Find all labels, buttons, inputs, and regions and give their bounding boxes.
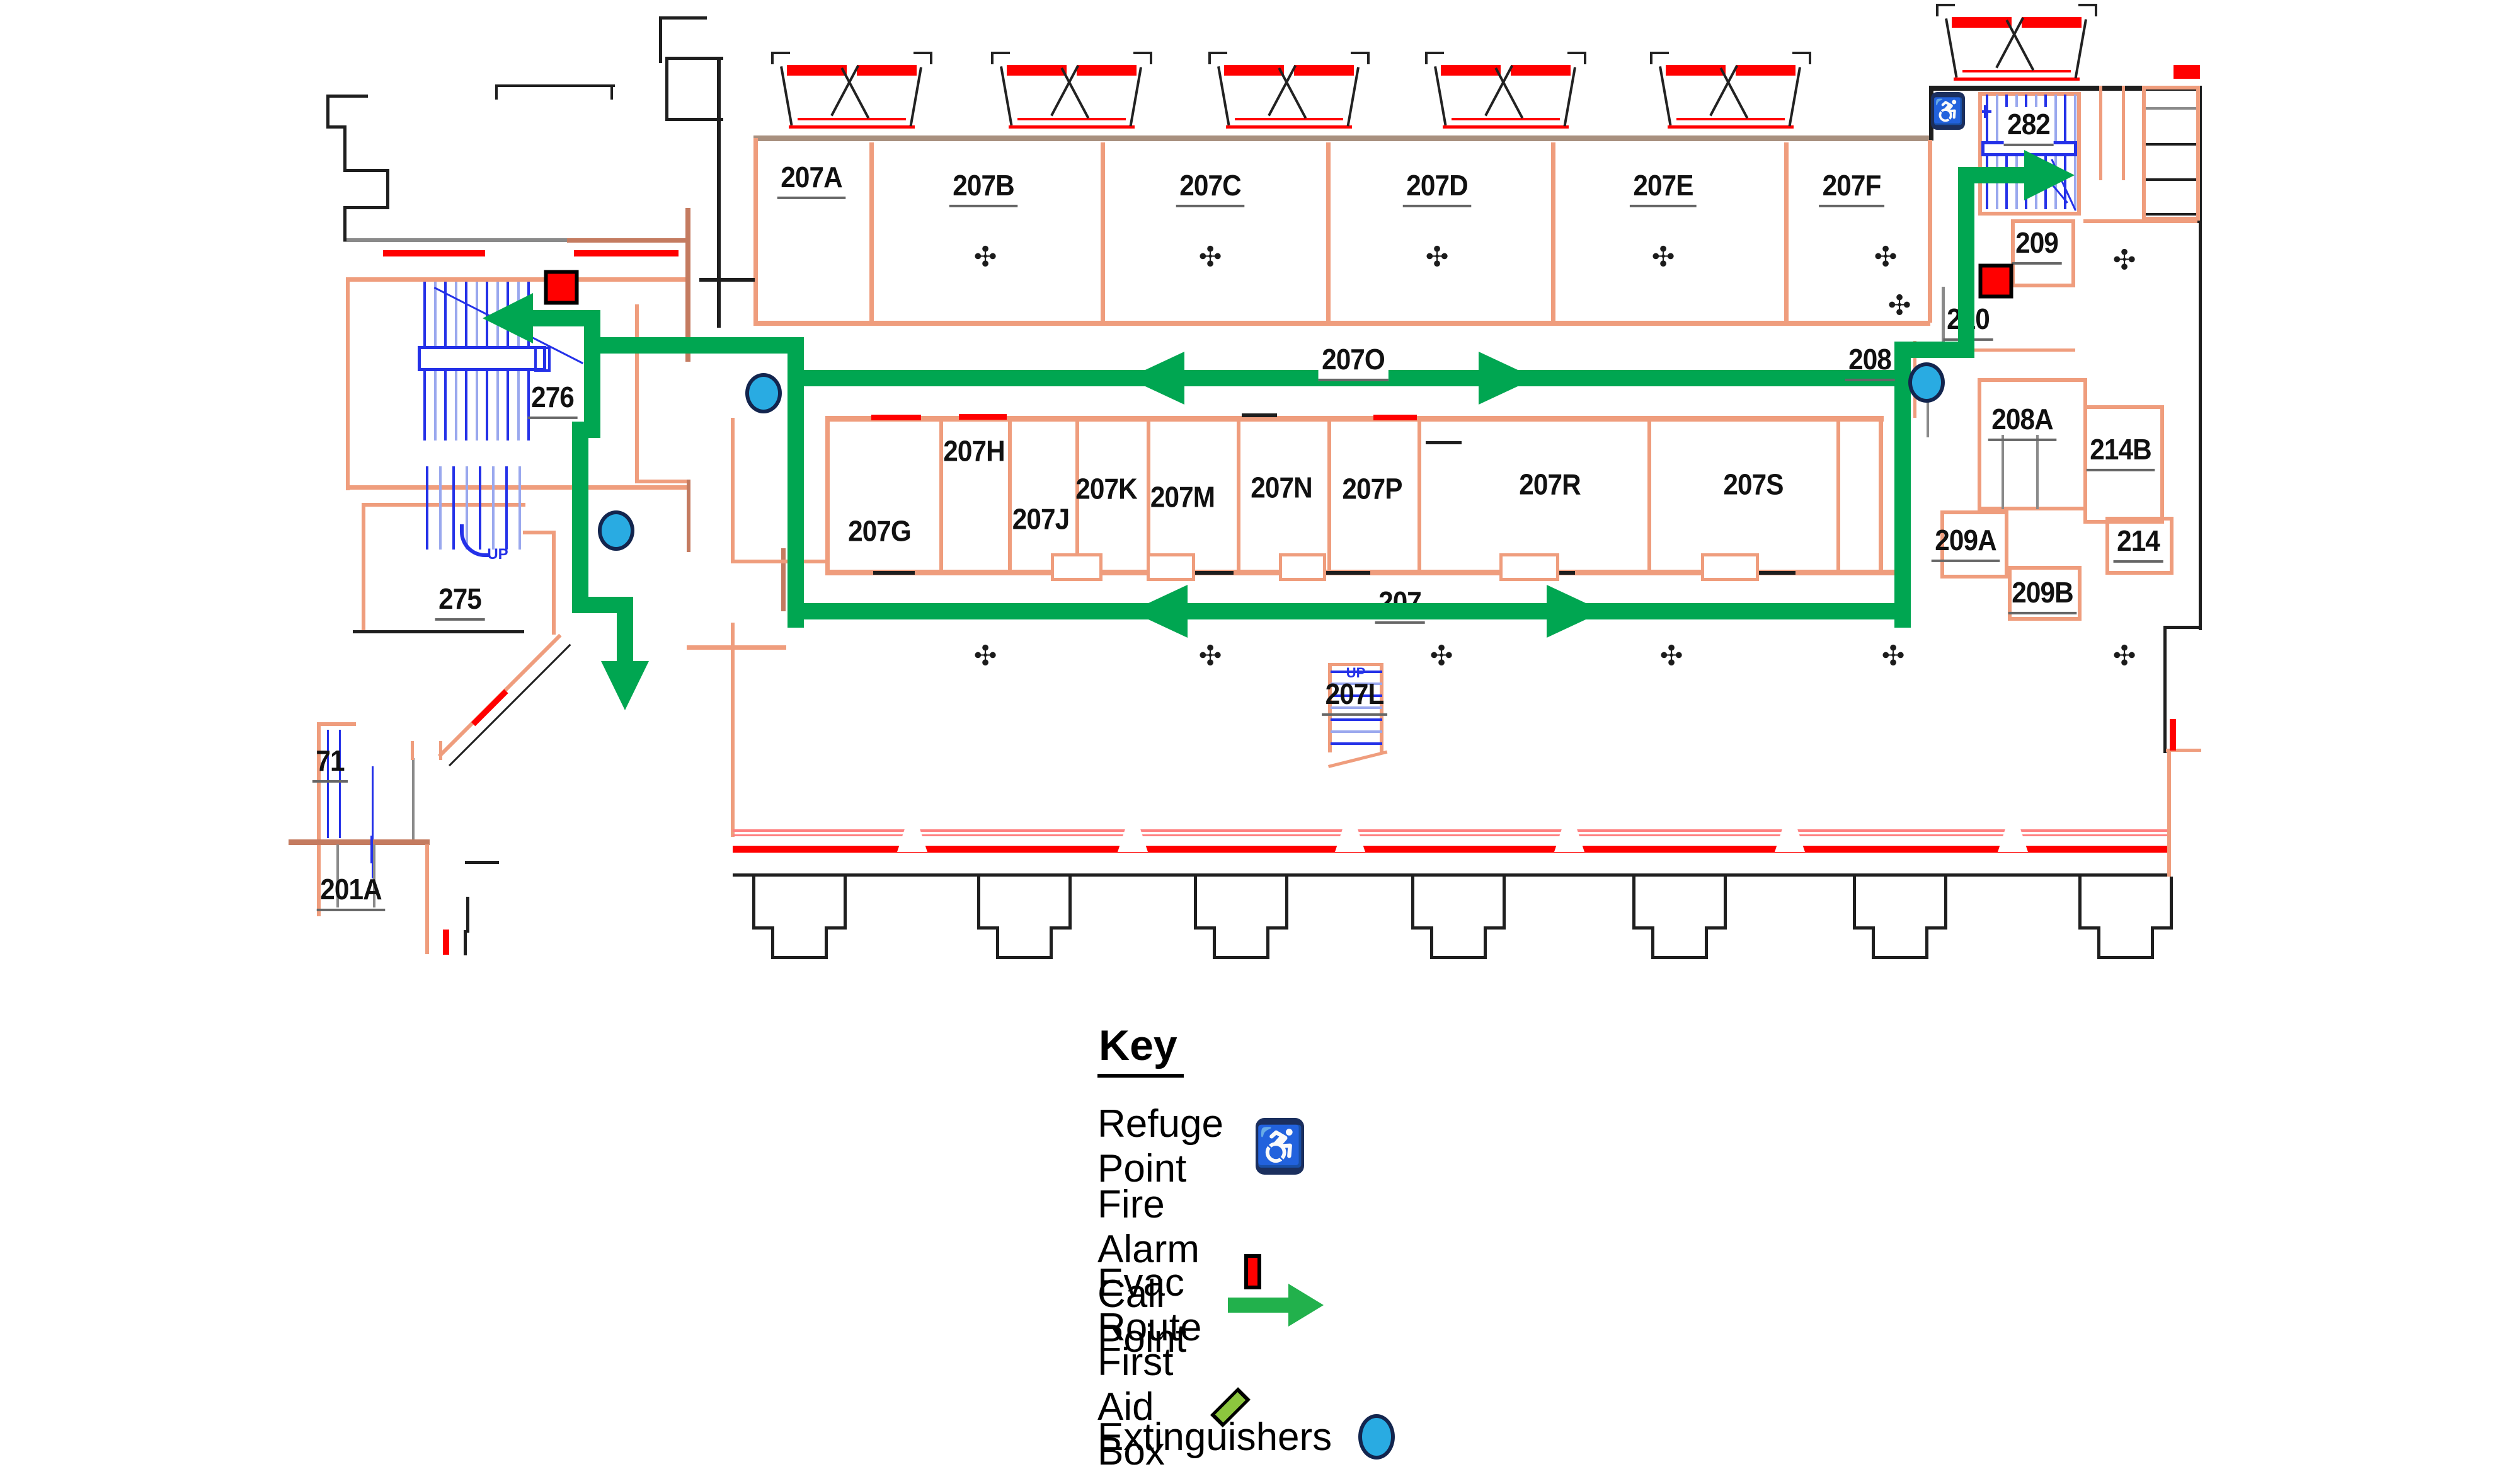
ornament-symbol: ✣ — [1888, 290, 1911, 322]
wall-segment — [2002, 435, 2004, 509]
legend-label-extinguishers: Extinguishers — [1097, 1415, 1332, 1460]
wall-segment — [665, 57, 668, 121]
window-keystone — [1998, 824, 2028, 852]
evac-route-arrowhead — [2024, 150, 2075, 200]
window-line — [1962, 70, 2071, 72]
window-bracket — [1425, 52, 1444, 54]
extinguisher-icon — [1358, 1414, 1395, 1460]
evac-route-arrowhead — [601, 661, 649, 710]
evac-route-segment — [617, 597, 633, 671]
door-recess — [1051, 553, 1102, 581]
window-line — [1009, 125, 1135, 129]
window-line — [1226, 125, 1352, 129]
wall-segment — [2199, 222, 2202, 630]
wall-segment — [343, 125, 346, 172]
wall-segment — [383, 250, 485, 256]
window-bracket — [1584, 52, 1586, 64]
pillar — [1194, 877, 1288, 930]
stair-tread — [505, 466, 508, 550]
room-label-207E: 207E — [1630, 168, 1697, 207]
wall-segment — [353, 630, 524, 633]
stair-tread — [439, 466, 442, 550]
window-bracket — [1150, 52, 1152, 64]
wall-segment — [2163, 626, 2200, 629]
extinguisher-marker — [598, 510, 634, 551]
wall-segment — [1326, 142, 1331, 323]
evac-route-arrowhead — [1479, 352, 1535, 405]
room-label-275: 275 — [435, 582, 485, 621]
ornament-symbol: ✣ — [1652, 241, 1675, 273]
wall-segment — [1194, 571, 1234, 575]
wall-segment — [362, 503, 525, 507]
wall-segment — [781, 548, 786, 611]
window-line — [1668, 125, 1794, 129]
window-bracket — [771, 52, 790, 54]
refuge-point-icon: ♿ — [1256, 1118, 1304, 1175]
wall-segment — [343, 169, 389, 172]
wall-segment — [343, 206, 346, 241]
window-line — [1235, 118, 1343, 120]
ornament-symbol: ✣ — [2113, 640, 2136, 672]
window-glass — [1441, 65, 1501, 76]
window-jamb — [910, 67, 922, 126]
room-label-207N: 207N — [1251, 470, 1312, 504]
wall-segment — [346, 277, 350, 490]
legend-item-extinguishers: Extinguishers — [1097, 1414, 1395, 1460]
legend-item-evac-route: Evac Route — [1097, 1260, 1324, 1350]
room-label-207P: 207P — [1342, 471, 1402, 505]
window-line — [789, 125, 915, 129]
pillar — [771, 926, 828, 959]
wall-segment — [731, 418, 735, 563]
wall-segment — [635, 480, 689, 483]
ornament-symbol: ✣ — [1882, 640, 1905, 672]
window-bracket — [1425, 52, 1428, 64]
wall-segment — [665, 118, 723, 121]
room-label-207J: 207J — [1012, 502, 1069, 536]
room-label-207M: 207M — [1150, 480, 1215, 514]
room-label-207O: 207O — [1319, 342, 1389, 381]
wall-segment — [1101, 142, 1105, 323]
wall-segment — [317, 722, 356, 726]
window-keystone — [1554, 824, 1584, 852]
pillar — [2078, 877, 2173, 930]
ornament-symbol: ✣ — [1660, 640, 1683, 672]
wall-segment — [2099, 86, 2102, 180]
wall-segment — [1836, 420, 1840, 571]
window-jamb — [1347, 67, 1360, 126]
ornament-symbol: ✣ — [1430, 640, 1453, 672]
stair-tread — [1331, 730, 1382, 733]
pillar — [996, 926, 1053, 959]
wall-segment — [753, 135, 1932, 141]
wall-segment — [659, 16, 662, 63]
pillar — [1853, 877, 1947, 930]
wall-segment — [465, 861, 499, 864]
wall-segment — [665, 57, 723, 60]
wall-segment — [362, 503, 365, 633]
wall-segment — [466, 897, 469, 933]
wall-segment — [2170, 719, 2176, 751]
wall-segment — [443, 930, 449, 955]
window-bracket — [1650, 52, 1669, 54]
wall-segment — [2122, 86, 2125, 180]
window-glass — [1666, 65, 1726, 76]
wall-segment — [659, 16, 707, 20]
ornament-symbol: ✣ — [1199, 640, 1222, 672]
wall-segment — [687, 645, 786, 650]
wall-segment — [869, 142, 874, 323]
window-glass — [2022, 17, 2082, 28]
room-label-208: 208 — [1845, 342, 1895, 381]
wall-segment — [2163, 628, 2167, 753]
window-glass — [1224, 65, 1284, 76]
pillar — [977, 877, 1072, 930]
room-label-207H: 207H — [943, 434, 1004, 468]
wall-segment — [1242, 413, 1277, 417]
window-bracket — [991, 52, 1010, 54]
extinguisher-marker — [745, 373, 782, 413]
pillar — [2097, 926, 2154, 959]
pillar — [1632, 877, 1727, 930]
wall-segment — [1758, 571, 1795, 575]
wall-segment — [610, 84, 613, 100]
evac-route-segment — [584, 337, 804, 354]
wall-segment — [1784, 142, 1789, 323]
wall-segment — [346, 277, 690, 282]
wall-segment — [1326, 571, 1370, 575]
wall-segment — [1647, 420, 1651, 571]
wall-segment — [733, 834, 2167, 836]
room-outline — [1978, 378, 2087, 510]
window-glass — [1077, 65, 1137, 76]
evac-route-segment — [1958, 167, 1974, 358]
window-glass — [787, 65, 847, 76]
wall-segment — [871, 415, 921, 420]
evac-route-segment — [787, 603, 1911, 619]
room-label-207K: 207K — [1075, 471, 1137, 505]
wall-segment — [343, 238, 570, 242]
diagonal-wall — [449, 644, 571, 766]
room-label-207C: 207C — [1176, 168, 1245, 207]
wall-segment — [495, 84, 498, 100]
window-bracket — [991, 52, 994, 64]
wall-segment — [552, 531, 556, 635]
up-text: UP — [487, 546, 508, 563]
stair-tread — [426, 466, 428, 550]
wall-segment — [1551, 142, 1555, 323]
wall-segment — [523, 531, 554, 534]
evac-route-arrowhead — [1128, 352, 1184, 405]
room-outline — [2142, 86, 2200, 221]
wall-segment — [1417, 420, 1421, 571]
wall-segment — [326, 95, 329, 129]
room-label-207L: 207L — [1322, 677, 1387, 716]
evac-route-icon — [1228, 1284, 1324, 1327]
wall-segment — [2167, 751, 2171, 879]
wall-segment — [939, 420, 943, 571]
window-bracket — [1809, 52, 1811, 64]
wall-segment — [687, 480, 690, 552]
room-label-201A: 201A — [317, 872, 386, 911]
wall-segment — [635, 304, 639, 483]
evac-route-segment — [572, 422, 588, 613]
window-line — [1443, 125, 1569, 129]
window-glass — [1952, 17, 2012, 28]
pillar — [1411, 877, 1506, 930]
window-glass — [1511, 65, 1571, 76]
fire-alarm-marker — [1979, 264, 2013, 299]
wall-segment — [733, 829, 2167, 832]
room-label-209B: 209B — [2008, 575, 2077, 614]
window-glass — [857, 65, 917, 76]
wall-segment — [2173, 65, 2200, 79]
stair-tread — [492, 466, 495, 550]
window-keystone — [1335, 824, 1365, 852]
wall-segment — [733, 846, 2167, 853]
window-line — [1954, 78, 2080, 81]
stair-handrail — [460, 524, 490, 557]
room-label-208A: 208A — [1988, 402, 2057, 441]
wall-segment — [959, 414, 1007, 420]
wall-segment — [717, 58, 721, 328]
stair-tread — [518, 466, 521, 550]
ornament-symbol: ✣ — [2113, 245, 2136, 277]
fire-alarm-marker — [544, 270, 579, 305]
wall-segment — [699, 278, 755, 282]
stair-tread — [1331, 718, 1382, 721]
window-bracket — [930, 52, 932, 64]
wall-segment — [825, 417, 830, 573]
wall-segment — [753, 138, 758, 326]
stair-tread — [1331, 742, 1382, 745]
room-label-209: 209 — [2012, 226, 2062, 265]
legend-label-evac-route: Evac Route — [1097, 1260, 1201, 1350]
wall-segment — [464, 930, 467, 955]
room-label-207D: 207D — [1403, 168, 1472, 207]
ornament-symbol: ✣ — [1199, 241, 1222, 273]
room-label-214B: 214B — [2087, 432, 2155, 471]
window-bracket — [1367, 52, 1370, 64]
wall-segment — [574, 250, 679, 256]
wall-segment — [1426, 441, 1462, 444]
door-symbol — [534, 347, 551, 372]
wall-segment — [412, 758, 415, 840]
room-label-207B: 207B — [949, 168, 1018, 207]
window-keystone — [1775, 824, 1805, 852]
wall-segment — [289, 839, 430, 845]
wall-segment — [731, 623, 735, 837]
room-label-207S: 207S — [1723, 467, 1783, 501]
window-bracket — [1936, 4, 1939, 16]
window-line — [1452, 118, 1560, 120]
wall-segment — [1879, 417, 1883, 573]
wall-segment — [346, 485, 690, 490]
door-recess — [1279, 553, 1326, 581]
evac-route-arrowhead — [1547, 585, 1603, 638]
window-glass — [1736, 65, 1795, 76]
window-line — [1676, 118, 1785, 120]
stair-tread — [452, 466, 455, 550]
wall-segment — [567, 238, 688, 243]
wall-segment — [1327, 420, 1331, 571]
window-line — [1017, 118, 1126, 120]
window-jamb — [1789, 67, 1801, 126]
ornament-symbol: ✣ — [974, 241, 997, 273]
ornament-symbol: ✣ — [1874, 241, 1898, 273]
door-recess — [1701, 553, 1759, 581]
door-recess — [1147, 553, 1195, 581]
pillar — [752, 877, 847, 930]
pillar — [1872, 926, 1928, 959]
wall-segment — [1237, 420, 1240, 571]
extinguisher-marker — [1908, 362, 1945, 403]
window-jamb — [1564, 67, 1576, 126]
room-label-214: 214 — [2114, 524, 2163, 563]
legend-title: Key — [1097, 1021, 1184, 1078]
refuge-point-marker: ♿ — [1931, 92, 1965, 130]
window-keystone — [1118, 824, 1148, 852]
wall-segment — [411, 741, 414, 760]
stair-landing — [418, 346, 546, 371]
pillar — [1430, 926, 1487, 959]
window-glass — [1294, 65, 1354, 76]
diagonal-wall — [471, 689, 508, 727]
wall-segment — [343, 206, 389, 209]
window-jamb — [1130, 67, 1142, 126]
room-label-282: 282 — [2004, 107, 2054, 146]
diagonal-wall — [1328, 751, 1387, 768]
window-bracket — [1936, 4, 1955, 6]
wall-segment — [2036, 435, 2039, 509]
wall-segment — [326, 95, 368, 98]
wall-segment — [370, 836, 373, 863]
ornament-symbol: ✣ — [1426, 241, 1449, 273]
window-line — [798, 118, 906, 120]
wall-segment — [495, 84, 615, 87]
room-label-71: 71 — [312, 744, 348, 783]
window-bracket — [1650, 52, 1652, 64]
legend-label-refuge-point: Refuge Point — [1097, 1102, 1229, 1191]
window-jamb — [2075, 19, 2087, 78]
evac-route-arrowhead — [1131, 585, 1188, 638]
pillar — [1651, 926, 1708, 959]
wall-segment — [425, 844, 429, 954]
wall-segment — [1928, 140, 1932, 323]
wall-segment — [1373, 415, 1417, 420]
window-bracket — [2095, 4, 2097, 16]
door-recess — [1499, 553, 1559, 581]
window-keystone — [897, 824, 927, 852]
evac-route-arrowhead — [483, 293, 533, 343]
window-glass — [1007, 65, 1067, 76]
window-bracket — [1208, 52, 1211, 64]
room-label-207G: 207G — [848, 514, 911, 548]
ornament-symbol: ✣ — [974, 640, 997, 672]
legend-item-refuge-point: Refuge Point ♿ — [1097, 1102, 1304, 1191]
room-label-207A: 207A — [777, 160, 846, 199]
window-bracket — [771, 52, 774, 64]
wall-segment — [386, 169, 389, 209]
wall-segment — [753, 321, 1930, 326]
window-bracket — [1208, 52, 1227, 54]
wall-segment — [873, 571, 915, 575]
room-label-276: 276 — [528, 380, 578, 419]
room-label-207F: 207F — [1819, 168, 1884, 207]
pillar — [1213, 926, 1269, 959]
room-label-209A: 209A — [1932, 523, 2000, 562]
wall-segment — [1008, 420, 1012, 571]
room-label-207R: 207R — [1519, 467, 1580, 501]
wall-segment — [731, 560, 827, 563]
